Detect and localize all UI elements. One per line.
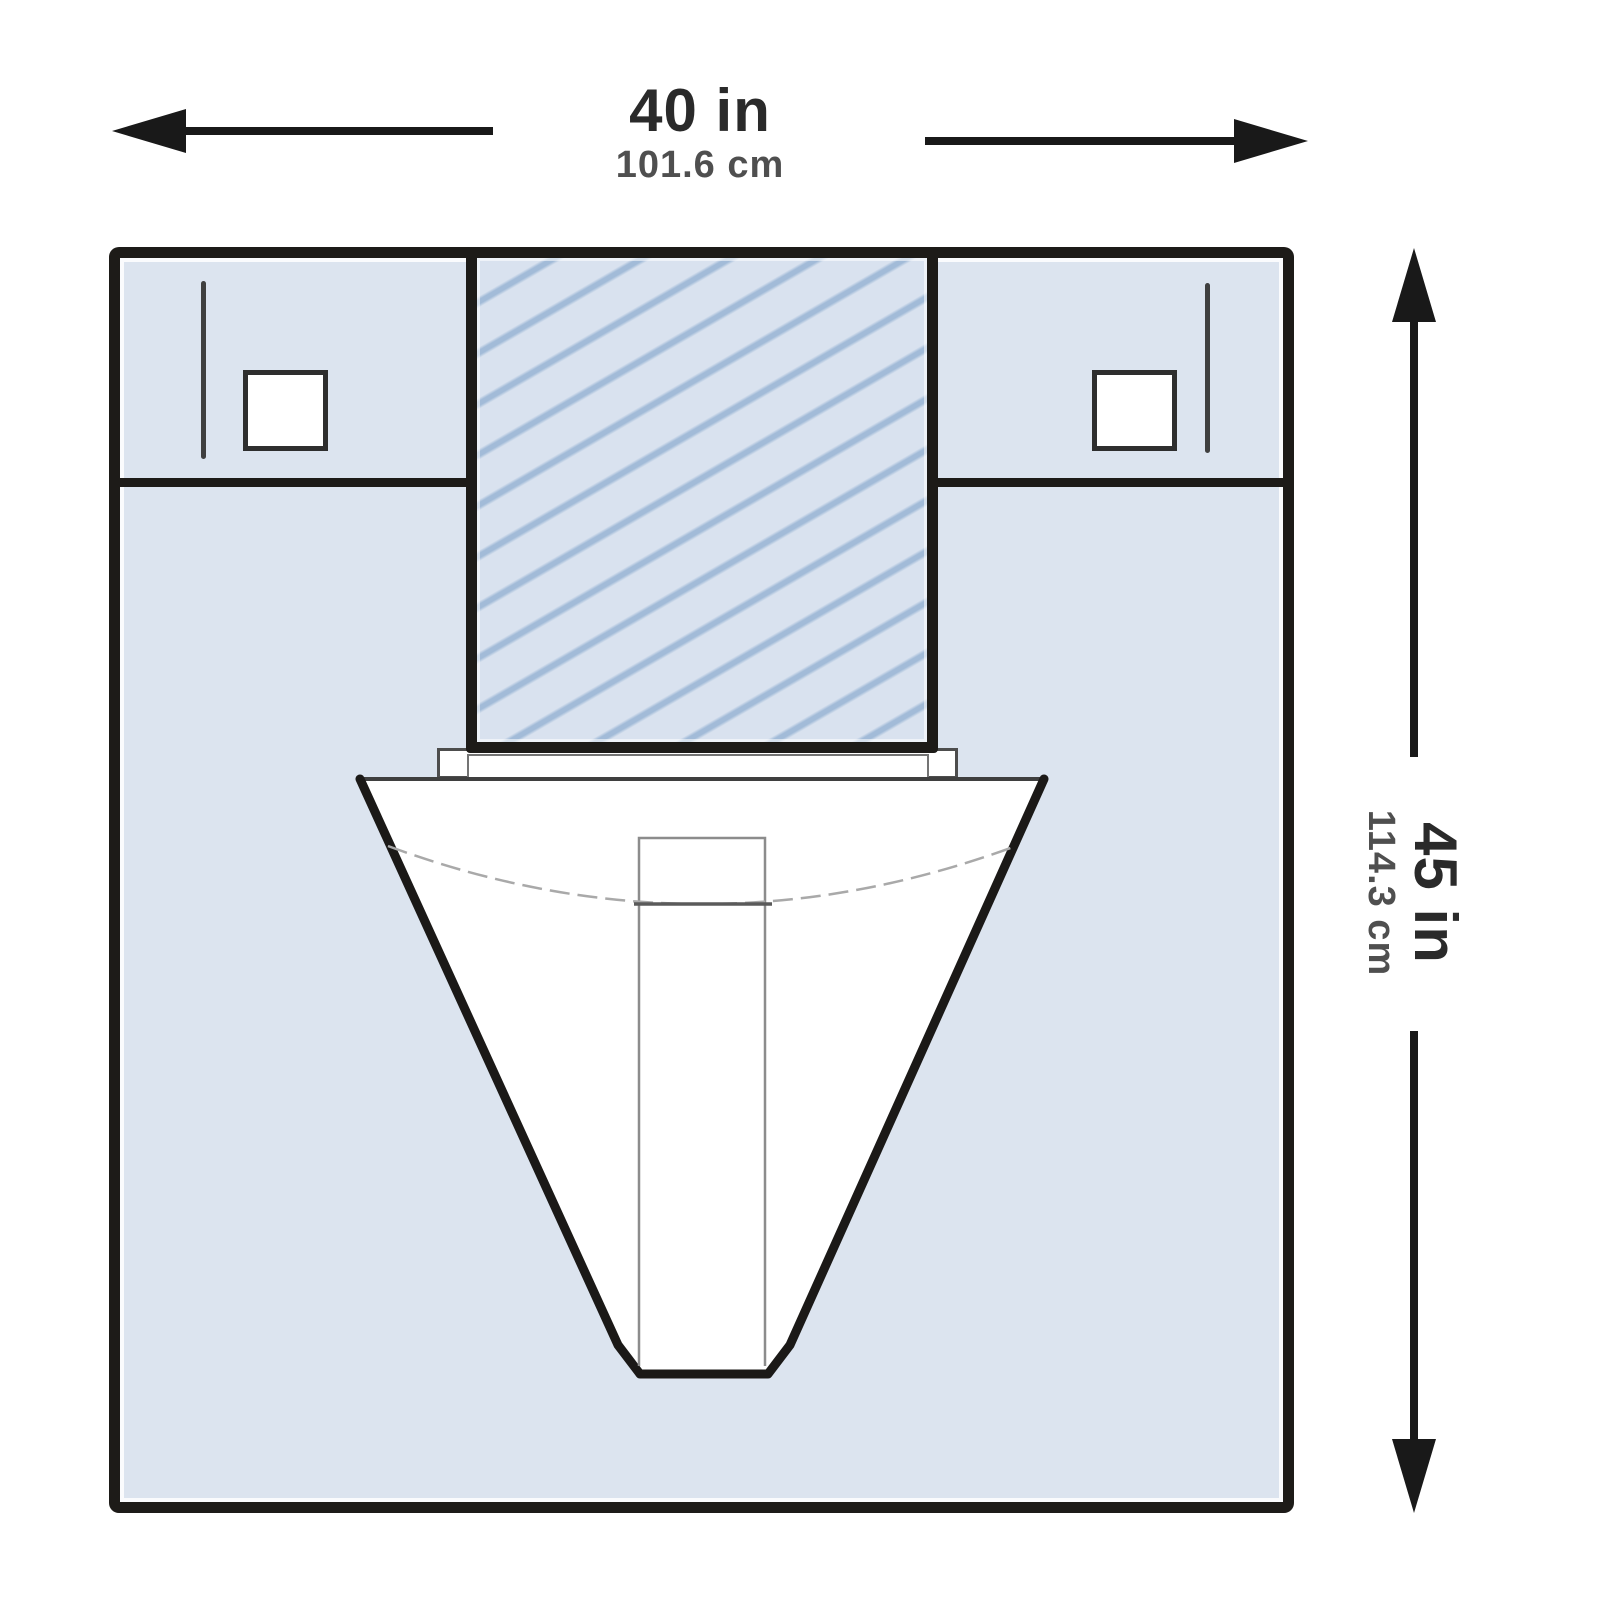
height-value-in: 45 in bbox=[1404, 810, 1466, 976]
width-value-cm: 101.6 cm bbox=[500, 142, 900, 188]
drape-dimension-diagram: 40 in 101.6 cm 45 in 114.3 cm bbox=[0, 0, 1600, 1600]
width-arrow-left-icon bbox=[112, 109, 493, 153]
width-arrow-right-icon bbox=[925, 119, 1308, 163]
drain-tube bbox=[639, 838, 765, 1366]
width-dimension-label: 40 in 101.6 cm bbox=[500, 80, 900, 188]
height-value-cm: 114.3 cm bbox=[1358, 810, 1404, 976]
height-arrow-down-icon bbox=[1392, 1031, 1436, 1513]
height-dimension-label: 45 in 114.3 cm bbox=[1358, 810, 1466, 976]
diagram-overlay bbox=[0, 0, 1600, 1600]
width-value-in: 40 in bbox=[500, 80, 900, 142]
height-arrow-up-icon bbox=[1392, 248, 1436, 757]
